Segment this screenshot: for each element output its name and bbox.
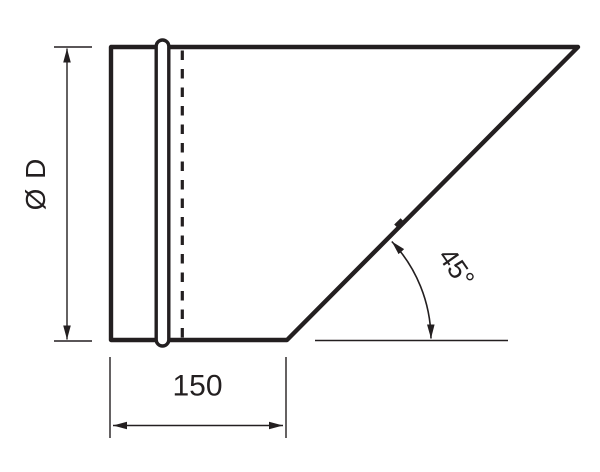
angle-label: 45° [432,243,480,294]
drawing-svg: Ø D 150 45° [0,0,600,472]
length-label: 150 [172,370,222,403]
technical-drawing-canvas: Ø D 150 45° [0,0,600,472]
angle-arc [392,242,431,339]
collar-bead [156,40,169,346]
length-dimension: 150 [110,357,286,438]
diameter-dimension: Ø D [20,47,92,341]
diameter-label: Ø D [20,158,51,211]
